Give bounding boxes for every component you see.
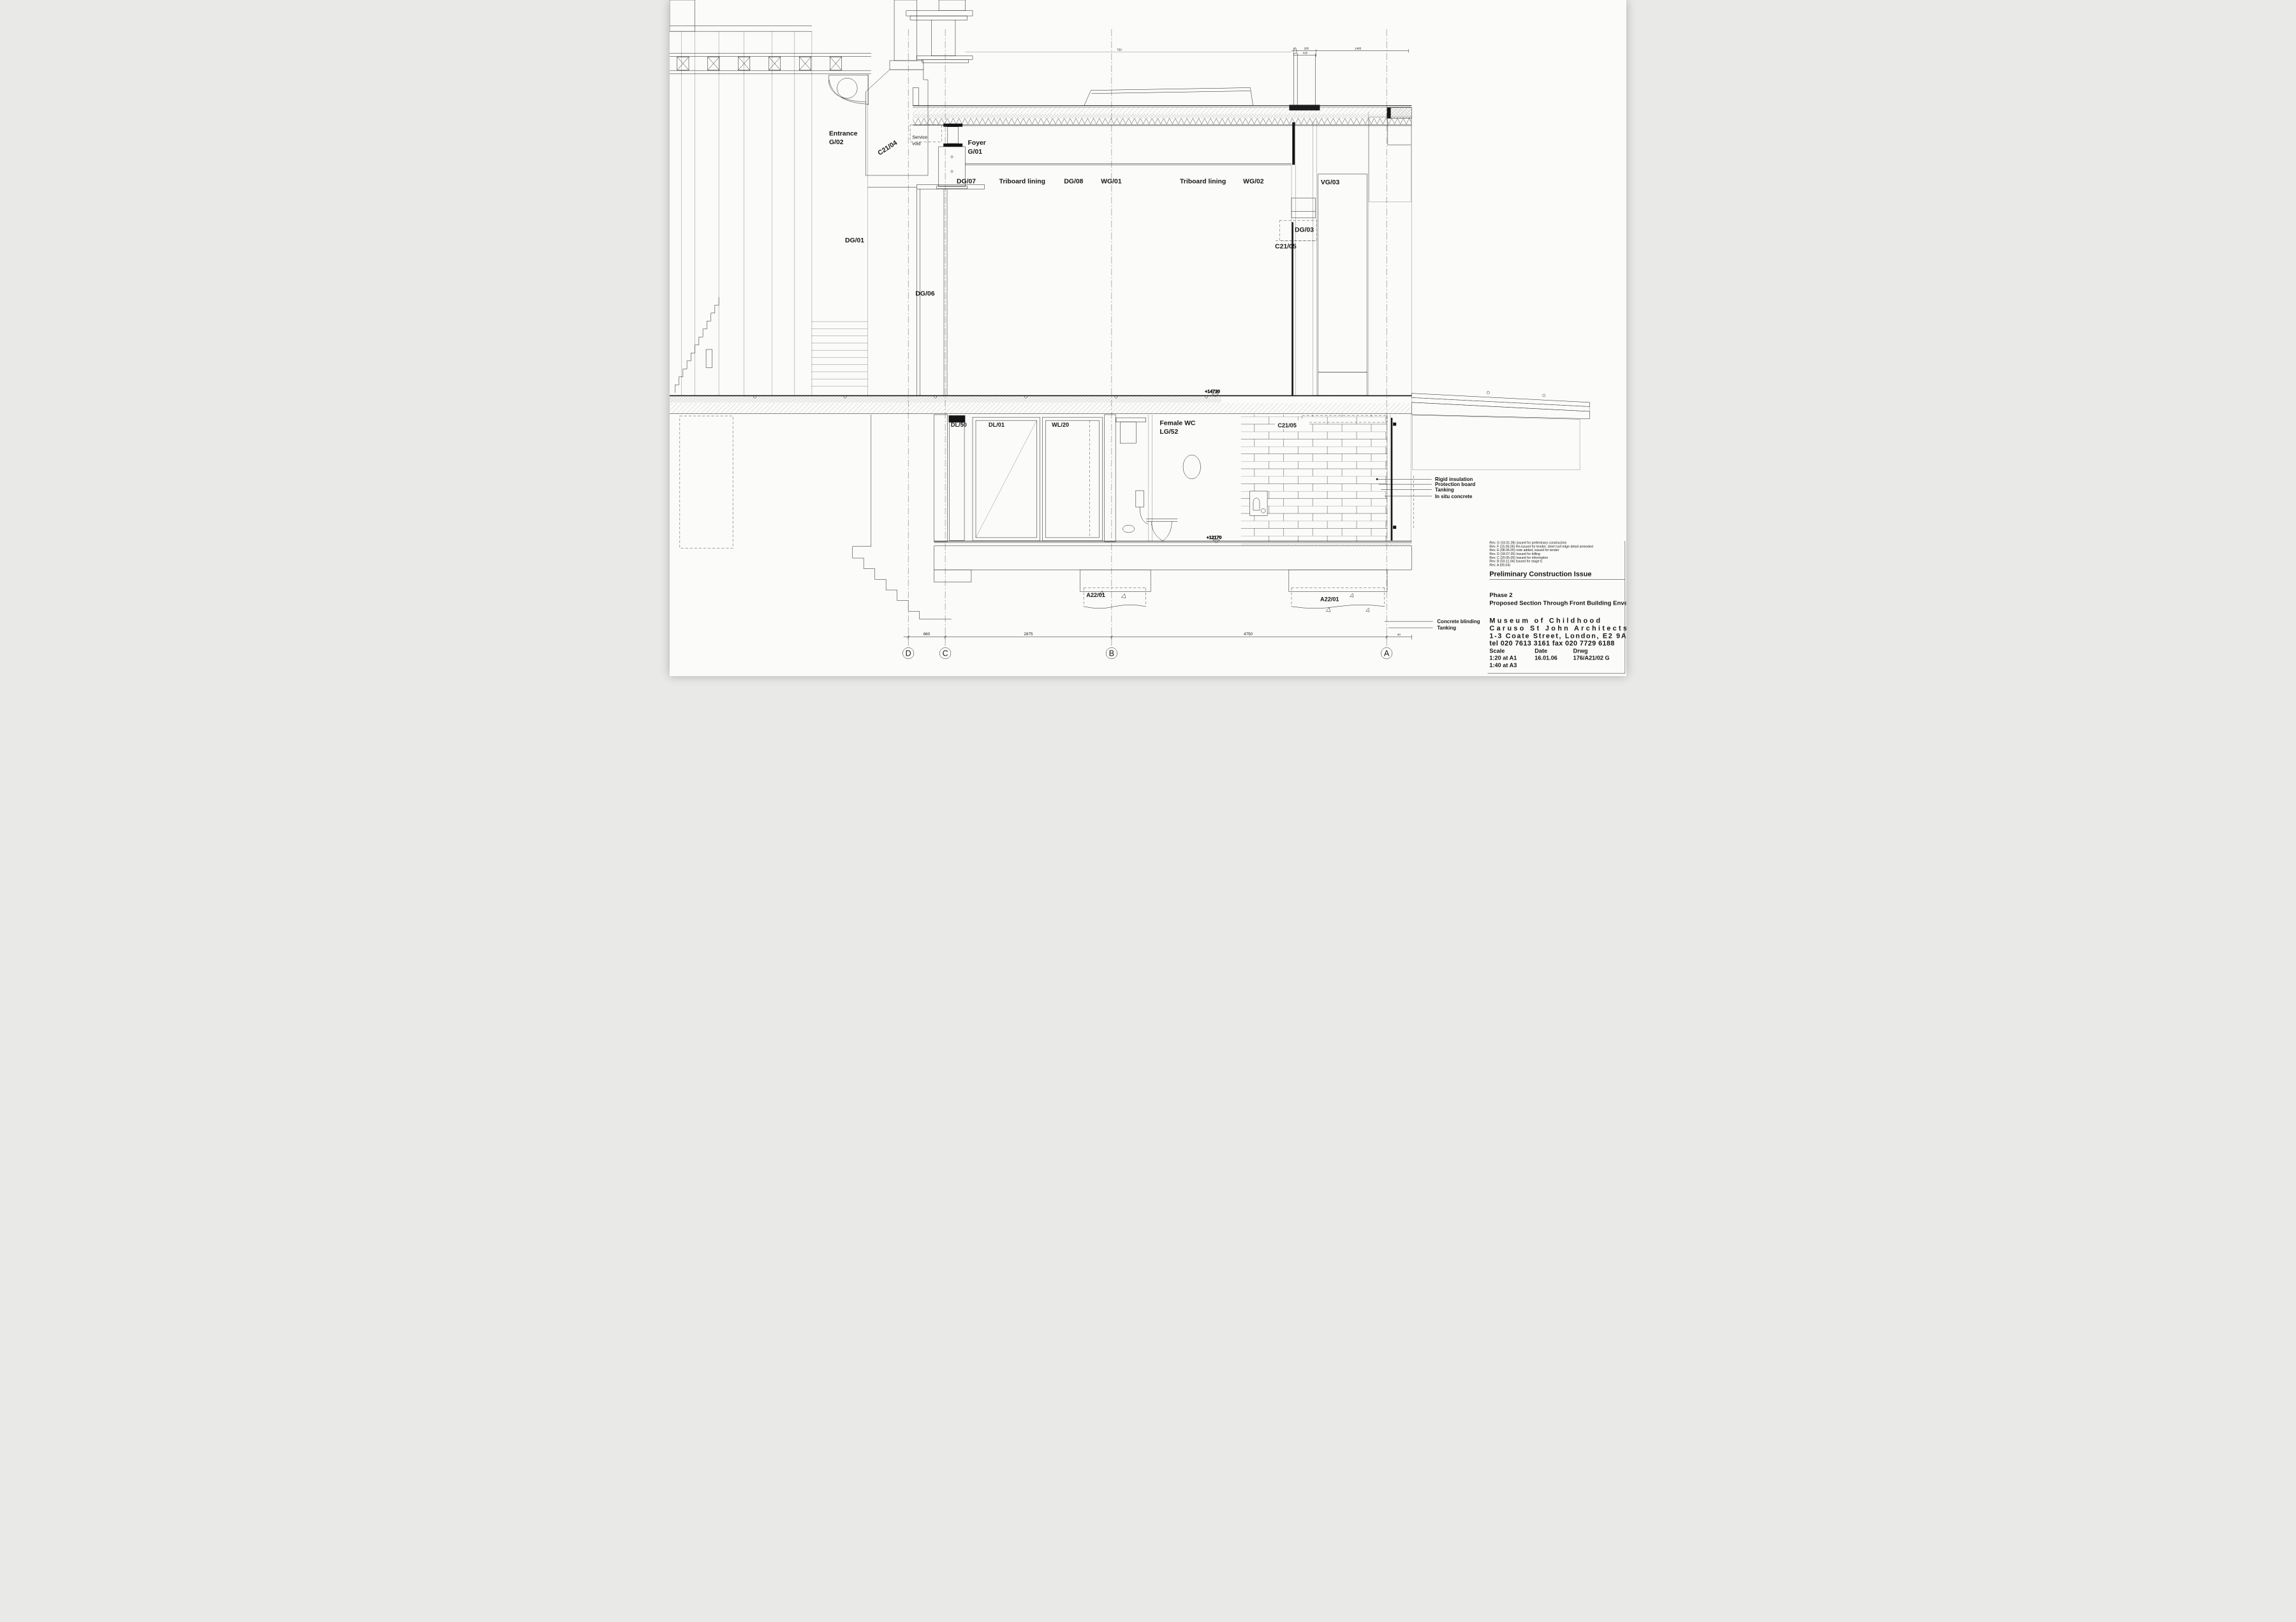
label-foyer: Foyer (968, 140, 986, 147)
roof-truss (670, 53, 871, 73)
title-block: Rev. G (16.01.06) issued for preliminary… (1487, 541, 1626, 674)
revision-e: Rev. E (08.06.05) note added, issued for… (1489, 549, 1559, 552)
dl01-door (973, 417, 1040, 541)
note-tanking-lower: Tanking (1437, 625, 1456, 631)
section-drawing: D C B A 660 2875 4750 40 40 265 1485 415… (670, 0, 1626, 676)
foundations (934, 543, 1412, 612)
firm-name: Museum of Childhood (1489, 617, 1602, 625)
label-dg06: DG/06 (915, 290, 934, 297)
level-lower-ground: +12170 (1207, 535, 1222, 540)
grid-letter-c: C (943, 649, 948, 658)
label-wl20: WL/20 (1052, 422, 1069, 428)
note-protection-board: Protection board (1435, 482, 1475, 487)
ground-floor-slab (670, 391, 1589, 469)
entrance-door (867, 185, 984, 395)
label-entrance: Entrance (829, 130, 858, 137)
level-ground: +14730 (1205, 389, 1220, 394)
dim-top-415: 415 (1302, 52, 1307, 55)
label-c21-05-lower: C21/05 (1277, 422, 1297, 429)
drwg-label: Drwg (1573, 647, 1588, 654)
bottom-dimension-line (904, 635, 1412, 639)
drawing-sheet: D C B A 660 2875 4750 40 40 265 1485 415… (670, 0, 1626, 676)
basement-right-wall (1387, 415, 1411, 542)
issue-status: Preliminary Construction Issue (1489, 570, 1591, 578)
stair-flight-lines (811, 321, 867, 386)
wall-niche (1250, 491, 1267, 515)
label-dg07: DG/07 (957, 178, 976, 185)
label-foyer-no: G/01 (968, 149, 983, 156)
revision-f: Rev. F (15.06.05) Re-issued for tender; … (1489, 545, 1593, 549)
label-c21-04: C21/04 (877, 140, 899, 158)
label-c21-05-upper: C21/05 (1275, 244, 1297, 251)
firm-address: 1-3 Coate Street, London, E2 9AG (1489, 632, 1626, 640)
wl20-screen (1043, 417, 1103, 541)
dim-top-40: 40 (1293, 47, 1297, 50)
phase-title: Phase 2 (1489, 592, 1512, 599)
date-value: 16.01.06 (1534, 655, 1557, 661)
dim-top-1485: 1485 (1355, 47, 1362, 50)
label-lg52: LG/52 (1159, 429, 1178, 436)
top-dimension-line (1291, 49, 1408, 57)
label-a22-01-b: A22/01 (1086, 592, 1105, 598)
rooflight (1084, 87, 1253, 105)
note-concrete-blinding: Concrete blinding (1437, 619, 1480, 624)
drwg-number: 176/A21/02 G (1573, 655, 1610, 661)
brick-wall (1241, 415, 1387, 542)
dl50-door (949, 415, 966, 540)
stepped-footing (853, 415, 952, 619)
firm-architects: Caruso St John Architects (1489, 625, 1626, 633)
revision-g: Rev. G (16.01.06) issued for preliminary… (1489, 541, 1566, 545)
dim-b-a: 4750 (1244, 632, 1253, 637)
right-wall-upper (1276, 112, 1411, 395)
dim-mid-750: 750 (1117, 48, 1122, 52)
existing-building-left (670, 0, 871, 395)
label-dl01: DL/01 (989, 422, 1004, 428)
roof-buildup (913, 53, 1411, 188)
cornice-moulding (906, 0, 973, 63)
note-in-situ-concrete: In situ concrete (1435, 494, 1473, 499)
dim-d-c: 660 (924, 632, 931, 637)
label-dg01: DG/01 (845, 237, 864, 244)
label-wg02: WG/02 (1243, 178, 1264, 185)
grid-letter-d: D (906, 649, 911, 658)
masonry-pier (866, 0, 985, 395)
label-dl50: DL/50 (951, 422, 967, 428)
parapet (1290, 53, 1320, 110)
label-triboard-2: Triboard lining (1180, 178, 1226, 185)
label-dg08: DG/08 (1064, 178, 1083, 185)
grid-letter-a: A (1384, 649, 1390, 658)
external-pavement (1411, 391, 1589, 469)
revision-c: Rev. C (20.05.05) Issued for information (1489, 556, 1548, 560)
revision-a: Rev. A (06.04) (1489, 563, 1510, 567)
label-triboard-1: Triboard lining (999, 178, 1045, 185)
scale-label: Scale (1489, 647, 1505, 654)
label-female-wc: Female WC (1159, 420, 1196, 427)
label-service-2: void (912, 141, 920, 146)
revision-b: Rev. B (03.11.04) Issued for stage E (1489, 560, 1543, 564)
steel-roof-edge (1387, 108, 1411, 145)
scale-value-1: 1:20 at A1 (1489, 655, 1517, 661)
dim-c-b: 2875 (1024, 632, 1033, 637)
basement (680, 415, 1411, 619)
label-vg03: VG/03 (1321, 179, 1340, 186)
date-label: Date (1534, 647, 1547, 654)
label-entrance-no: G/02 (829, 139, 844, 146)
ornate-bracket (828, 75, 868, 105)
dim-a-edge: 40 (1397, 633, 1401, 637)
revision-d: Rev. D (18.07.05) Issued for billing (1489, 552, 1540, 556)
label-dg03: DG/03 (1295, 226, 1314, 233)
cast-iron-grille (1318, 174, 1367, 372)
grid-letter-b: B (1109, 649, 1114, 658)
drawing-title: Proposed Section Through Front Building … (1489, 600, 1626, 607)
label-a22-01-a: A22/01 (1320, 596, 1339, 602)
wc-fittings (1116, 415, 1200, 542)
note-tanking-upper: Tanking (1435, 487, 1454, 492)
label-wg01: WG/01 (1101, 178, 1122, 185)
firm-phone: tel 020 7613 3161 fax 020 7729 6188 (1489, 640, 1614, 647)
scale-value-2: 1:40 at A3 (1489, 662, 1517, 668)
label-service-1: Service (912, 135, 927, 140)
dim-top-265: 265 (1304, 47, 1309, 50)
grid-bubbles: D C B A (902, 647, 1392, 658)
